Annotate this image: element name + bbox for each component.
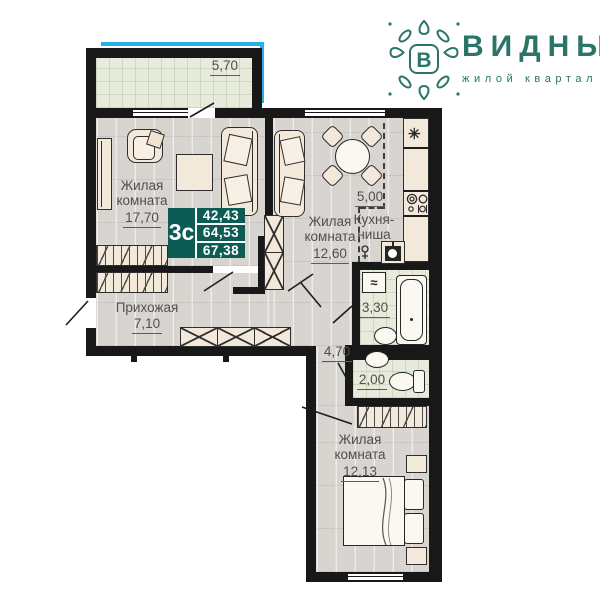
wall-tick <box>131 356 137 362</box>
closet-living <box>96 245 168 266</box>
brand-subtitle: жилой квартал <box>462 73 600 85</box>
counter-divider <box>403 190 429 192</box>
dining-table <box>335 139 370 174</box>
brand-monogram: В <box>416 49 431 72</box>
wall <box>86 48 96 110</box>
kitchen-area-label: 5,00 <box>348 190 392 207</box>
bathroom-label: 3,30 <box>354 301 396 318</box>
hallway-label: Прихожая 7,10 <box>97 301 197 334</box>
armchair <box>127 129 163 163</box>
hall-wardrobe <box>217 327 255 347</box>
apartment-type: 3с <box>168 208 195 258</box>
nightstand <box>406 547 427 565</box>
wall <box>345 345 442 360</box>
counter-divider <box>403 215 429 217</box>
apartment-badge: 3с 42,43 64,53 67,38 <box>168 208 245 258</box>
kitchen-zone-dash <box>360 207 383 209</box>
sofa-living2 <box>274 130 305 217</box>
balcony-label: 5,70 <box>96 59 240 76</box>
pillow <box>404 479 424 510</box>
fridge-icon: ✳ <box>408 125 421 143</box>
entrance-opening <box>86 298 96 328</box>
wc-sink <box>365 351 389 368</box>
bedroom-wardrobe <box>357 406 427 428</box>
toilet-tank <box>413 370 425 393</box>
area-value: 42,43 <box>197 208 245 223</box>
bathroom-sink <box>374 327 397 345</box>
kitchen-sink-bowl <box>388 249 397 258</box>
pillow <box>404 513 424 544</box>
wall <box>233 287 265 294</box>
window-bedroom <box>348 572 403 582</box>
wall <box>252 48 262 110</box>
brand-logo-text: ВИДНЫЙ жилой квартал <box>462 30 600 85</box>
wall <box>265 118 273 218</box>
brand-logo-mark: В <box>385 12 463 108</box>
wc-label: 2,00 <box>351 373 393 390</box>
area-value: 67,38 <box>197 243 245 258</box>
hall-wardrobe <box>254 327 291 347</box>
balcony-door-opening <box>188 108 215 118</box>
window-living2 <box>305 108 385 118</box>
window-living1 <box>133 108 188 118</box>
counter-divider <box>403 147 429 149</box>
wall <box>86 48 262 58</box>
wall-tick <box>223 356 229 362</box>
kitchen-sink-tap <box>392 242 394 248</box>
floorplan-canvas: ✳ ≈ <box>0 0 600 600</box>
wall <box>86 346 316 356</box>
closet-hallway <box>96 272 168 293</box>
kitchen-label: Кухня- ниша <box>346 213 402 243</box>
brand-title: ВИДНЫЙ <box>462 30 600 64</box>
washer-icon: ≈ <box>370 275 377 290</box>
bathtub <box>396 275 427 345</box>
wall <box>345 398 442 406</box>
bed <box>343 476 405 546</box>
bedroom-label: Жилая комната 12,13 <box>310 433 410 482</box>
sofa-living1 <box>221 127 258 216</box>
corridor-label: 4,70 <box>315 345 359 362</box>
area-value: 64,53 <box>197 225 245 240</box>
toilet-bowl <box>389 372 416 391</box>
washing-machine: ≈ <box>362 272 386 293</box>
